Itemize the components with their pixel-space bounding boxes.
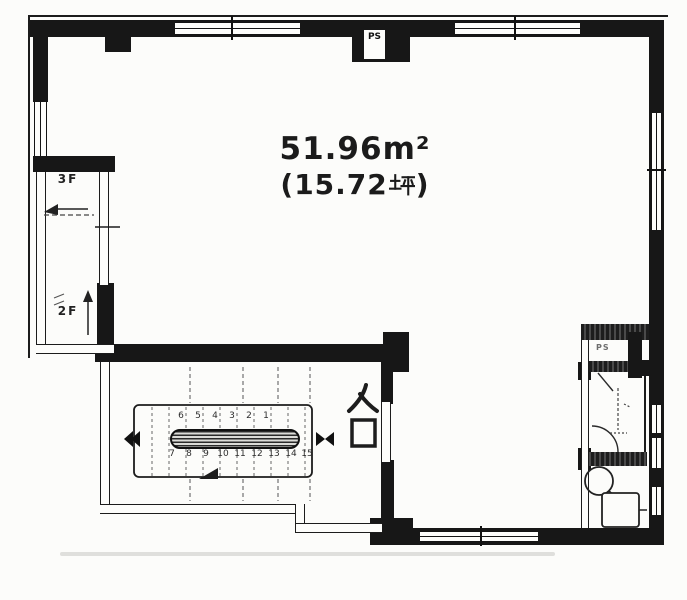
tsubo-kanji bbox=[389, 171, 415, 197]
entrance-label bbox=[344, 382, 380, 452]
stair-number: 8 bbox=[186, 450, 192, 459]
stair-number: 1 bbox=[263, 412, 269, 421]
area-sqm-number: 51.96 bbox=[280, 131, 383, 167]
pipe-space-label: PS bbox=[364, 30, 385, 59]
stair-arrowhead-3f bbox=[44, 204, 58, 215]
stair-handrail bbox=[170, 429, 300, 449]
area-tsubo-prefix: (15.72 bbox=[280, 168, 387, 202]
area-tsubo-suffix: ) bbox=[416, 168, 430, 202]
stair-number: 2 bbox=[246, 412, 252, 421]
stair-number: 7 bbox=[169, 450, 175, 459]
stair-number: 10 bbox=[217, 450, 228, 459]
area-text: 51.96m² (15.72 ) bbox=[233, 132, 477, 224]
stair-start-marker bbox=[199, 468, 218, 479]
floor-label-2f: 2F bbox=[46, 304, 90, 318]
toilet-ps-label: PS bbox=[596, 343, 610, 352]
plan-overlay bbox=[0, 0, 687, 600]
area-tsubo: (15.72 ) bbox=[280, 168, 429, 202]
stair-number: 11 bbox=[234, 450, 245, 459]
water-heater-box bbox=[602, 493, 639, 527]
stair-number: 4 bbox=[212, 412, 218, 421]
stair-arrowhead-2f bbox=[83, 290, 93, 302]
stair-number: 3 bbox=[229, 412, 235, 421]
stair-number: 5 bbox=[195, 412, 201, 421]
toilet-fixture-marks bbox=[610, 404, 630, 433]
stair-number: 13 bbox=[268, 450, 279, 459]
entrance-kanji bbox=[344, 382, 380, 452]
stair-number: 9 bbox=[203, 450, 209, 459]
ps-door-leaf bbox=[598, 373, 613, 391]
stair-arrow-left bbox=[124, 431, 133, 447]
wash-basin bbox=[585, 467, 613, 495]
stair-number: 15 bbox=[301, 450, 312, 459]
toilet-door-arc bbox=[592, 426, 618, 452]
stair-number: 14 bbox=[285, 450, 296, 459]
stair-number: 12 bbox=[251, 450, 262, 459]
stair-number: 6 bbox=[178, 412, 184, 421]
area-sqm: 51.96m² bbox=[280, 132, 431, 168]
floor-label-3f: 3F bbox=[46, 172, 90, 186]
area-sqm-unit: m² bbox=[383, 131, 431, 167]
stair-arrow-right bbox=[316, 432, 325, 446]
floor-plan: PS 3F 2F PS bbox=[0, 0, 687, 600]
stair-arrow-right bbox=[325, 432, 334, 446]
